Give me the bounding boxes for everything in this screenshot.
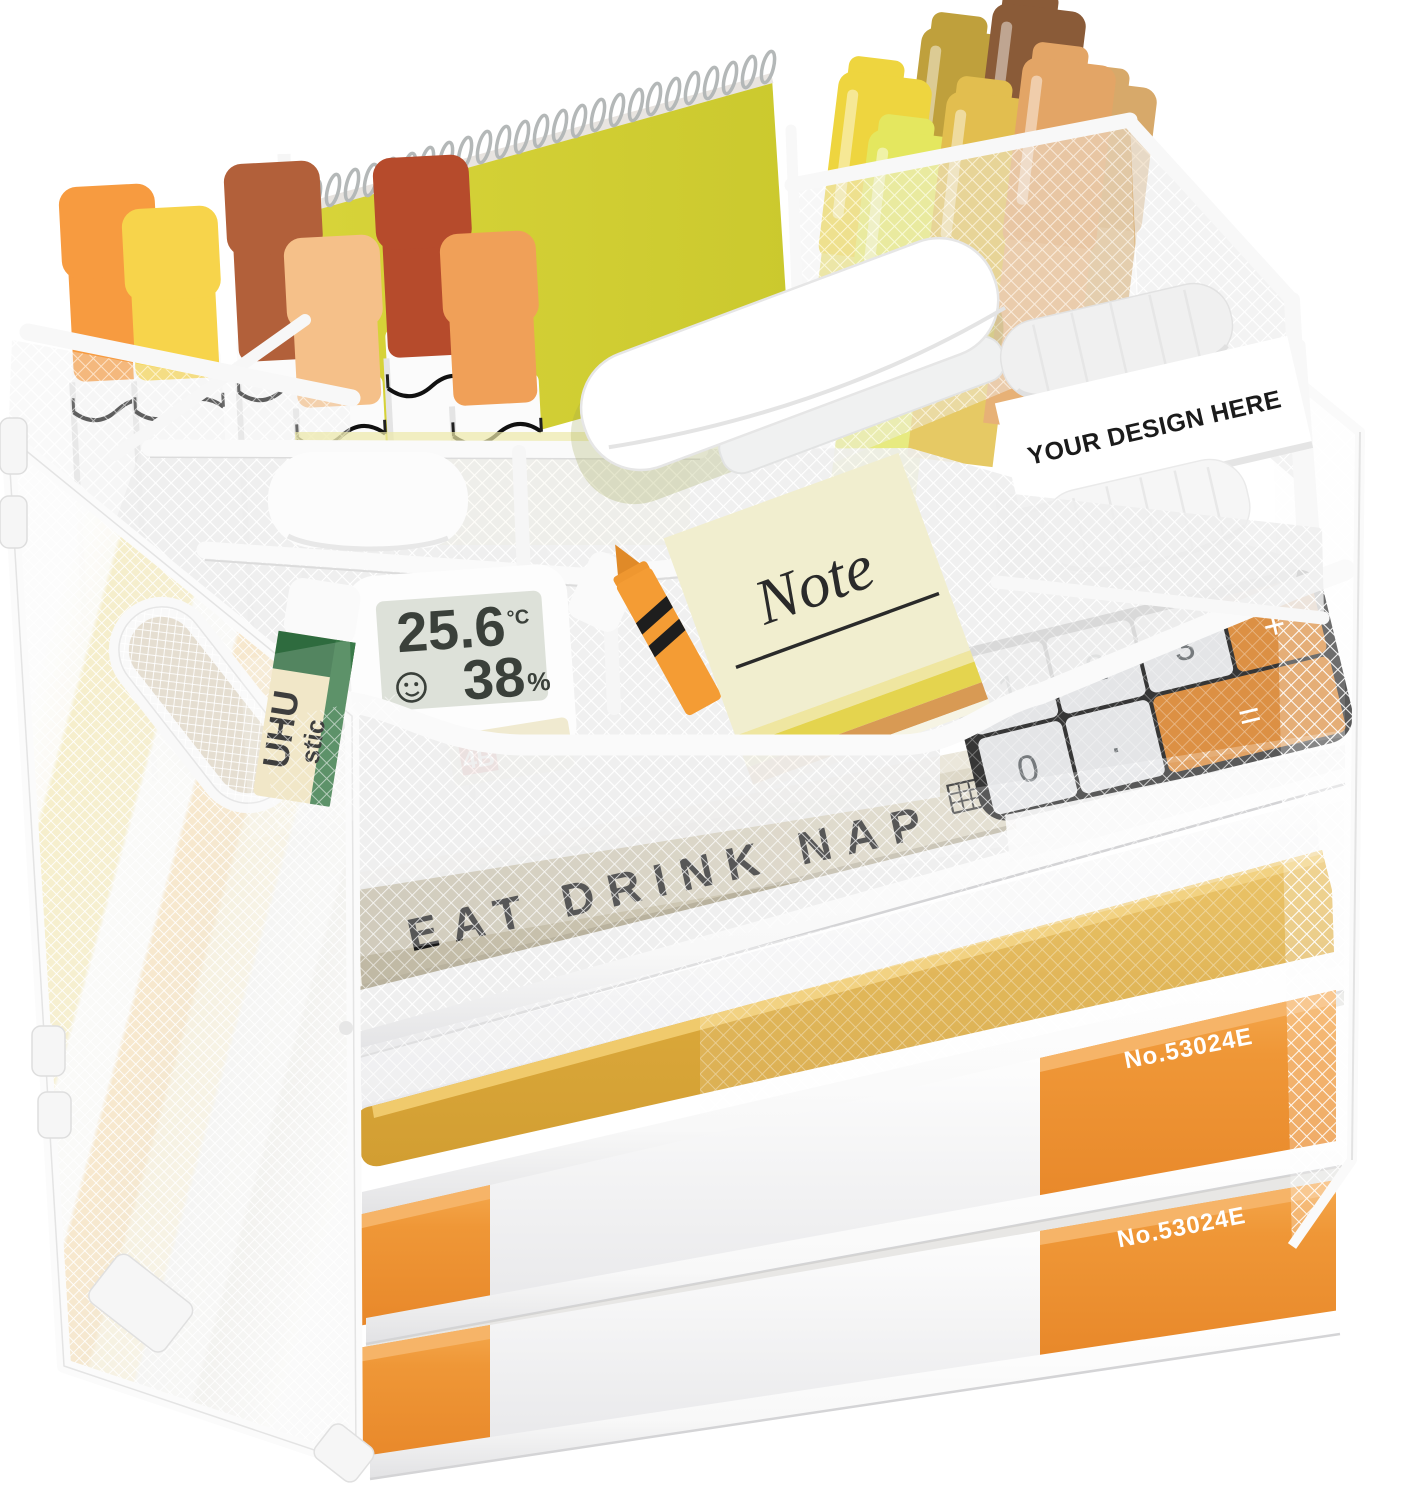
svg-text:°C: °C bbox=[506, 606, 530, 630]
svg-text:%: % bbox=[526, 666, 551, 698]
svg-text:38: 38 bbox=[461, 645, 528, 712]
